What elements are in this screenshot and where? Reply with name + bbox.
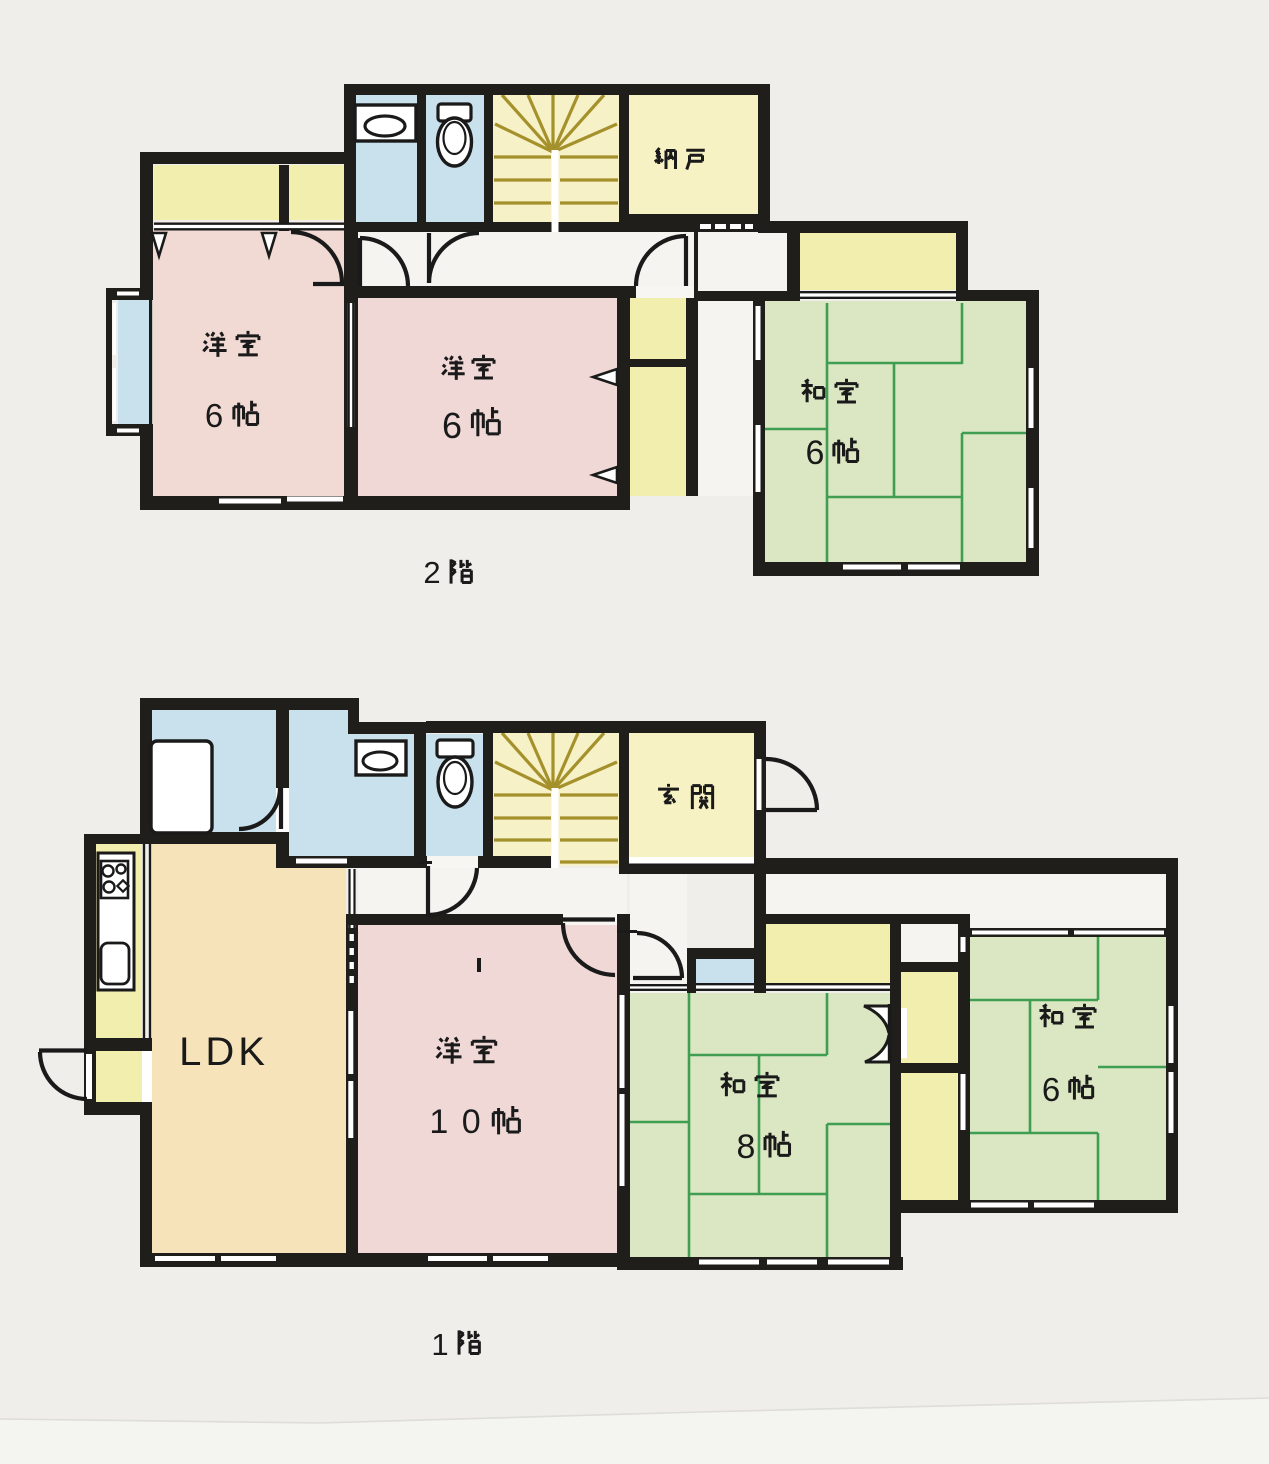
svg-text:6: 6 [205, 397, 223, 434]
svg-text:8: 8 [737, 1128, 756, 1166]
svg-text:1 0: 1 0 [429, 1103, 482, 1141]
svg-text:6: 6 [806, 434, 825, 472]
svg-text:2: 2 [423, 555, 440, 590]
svg-text:6: 6 [1042, 1071, 1060, 1108]
svg-text:6: 6 [442, 405, 462, 446]
svg-text:LDK: LDK [179, 1030, 269, 1074]
svg-text:1: 1 [431, 1327, 448, 1362]
